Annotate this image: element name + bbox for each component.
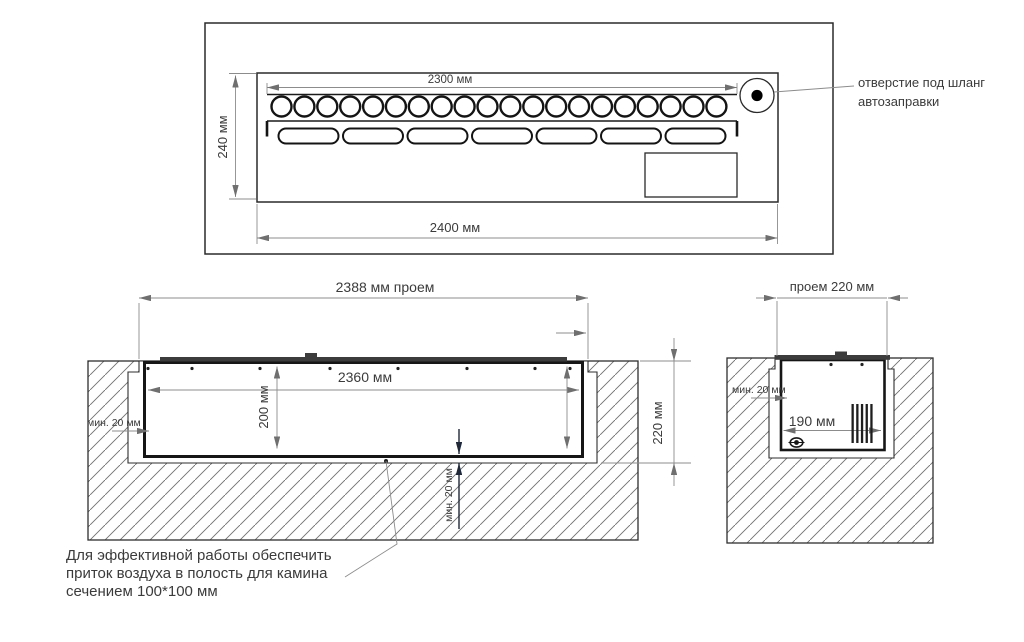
- front-lid-knob: [305, 353, 317, 357]
- burner-hole: [317, 97, 337, 117]
- grille-bar: [856, 404, 858, 443]
- burner-slot: [343, 129, 403, 144]
- screw-dot: [829, 363, 832, 366]
- dim-tank-inner-depth-label: 190 мм: [789, 413, 836, 429]
- refill-callout-line1: отверстие под шланг: [858, 75, 985, 90]
- grille-bar: [861, 404, 863, 443]
- control-box: [645, 153, 737, 197]
- burner-slot: [408, 129, 468, 144]
- dim-opening-width-label: 2388 мм проем: [336, 279, 435, 295]
- side-clearance-label: мин. 20 мм: [732, 384, 786, 396]
- burner-slot: [279, 129, 339, 144]
- refill-callout-line2: автозаправки: [858, 94, 939, 109]
- screw-dot: [860, 363, 863, 366]
- screw-dot: [396, 367, 399, 370]
- burner-hole: [386, 97, 406, 117]
- side-section-view: проем 220 мм мин. 20 мм 190 мм: [727, 279, 933, 543]
- fireplace-installation-drawing: 2300 мм 2400 мм 240 мм отверстие под шла…: [0, 0, 1024, 642]
- burner-hole: [432, 97, 452, 117]
- burner-hole: [363, 97, 383, 117]
- side-tank: [781, 360, 885, 450]
- burner-hole: [684, 97, 704, 117]
- burner-hole: [294, 97, 314, 117]
- screw-dot: [258, 367, 261, 370]
- burner-slot: [472, 129, 532, 144]
- front-bottom-clearance-label: мин. 20 мм: [443, 468, 455, 522]
- front-section-view: 2388 мм проем 2360 мм 200 мм мин. 20 мм …: [87, 279, 691, 577]
- note-line3: сечением 100*100 мм: [66, 583, 218, 600]
- burner-slot: [537, 129, 597, 144]
- burner-hole: [478, 97, 498, 117]
- front-tank-lid: [160, 357, 567, 362]
- screw-dot: [146, 367, 149, 370]
- dim-unit-depth-label: 240 мм: [215, 115, 230, 158]
- top-view: 2300 мм 2400 мм 240 мм отверстие под шла…: [205, 23, 985, 254]
- burner-hole: [592, 97, 612, 117]
- burner-hole: [455, 97, 475, 117]
- dim-opening-depth-label: проем 220 мм: [790, 279, 875, 294]
- burner-hole: [569, 97, 589, 117]
- grille-bar: [870, 404, 872, 443]
- burner-hole: [661, 97, 681, 117]
- dim-tank-height-label: 200 мм: [256, 385, 271, 428]
- burner-hole: [272, 97, 292, 117]
- burner-slots-row: [279, 129, 726, 144]
- grille-bar: [852, 404, 854, 443]
- dim-unit-width-label: 2400 мм: [430, 220, 480, 235]
- burner-hole: [546, 97, 566, 117]
- front-side-clearance-label: мин. 20 мм: [87, 417, 141, 429]
- air-inflow-note: Для эффективной работы обеспечить приток…: [66, 547, 332, 600]
- refill-port-hole: [751, 90, 762, 101]
- note-line2: приток воздуха в полость для камина: [66, 565, 328, 582]
- dim-cavity-depth-label: 220 мм: [650, 401, 665, 444]
- screw-dot: [465, 367, 468, 370]
- side-tank-lid: [775, 355, 891, 360]
- dim-tank-inner-width-label: 2360 мм: [338, 369, 392, 385]
- burner-slot: [666, 129, 726, 144]
- burner-hole: [409, 97, 429, 117]
- technical-drawing-page: 2300 мм 2400 мм 240 мм отверстие под шла…: [0, 0, 1024, 642]
- burner-hole: [615, 97, 635, 117]
- burner-slot: [601, 129, 661, 144]
- side-lid-knob: [835, 352, 847, 356]
- burner-hole: [706, 97, 726, 117]
- screw-dot: [568, 367, 571, 370]
- screw-dot: [190, 367, 193, 370]
- grille-bar: [866, 404, 868, 443]
- screw-dot: [533, 367, 536, 370]
- burner-hole: [500, 97, 520, 117]
- note-line1: Для эффективной работы обеспечить: [66, 547, 332, 564]
- burner-hole: [340, 97, 360, 117]
- screw-dot: [328, 367, 331, 370]
- dim-burner-width-label: 2300 мм: [428, 74, 473, 86]
- burner-hole: [523, 97, 543, 117]
- burner-hole: [638, 97, 658, 117]
